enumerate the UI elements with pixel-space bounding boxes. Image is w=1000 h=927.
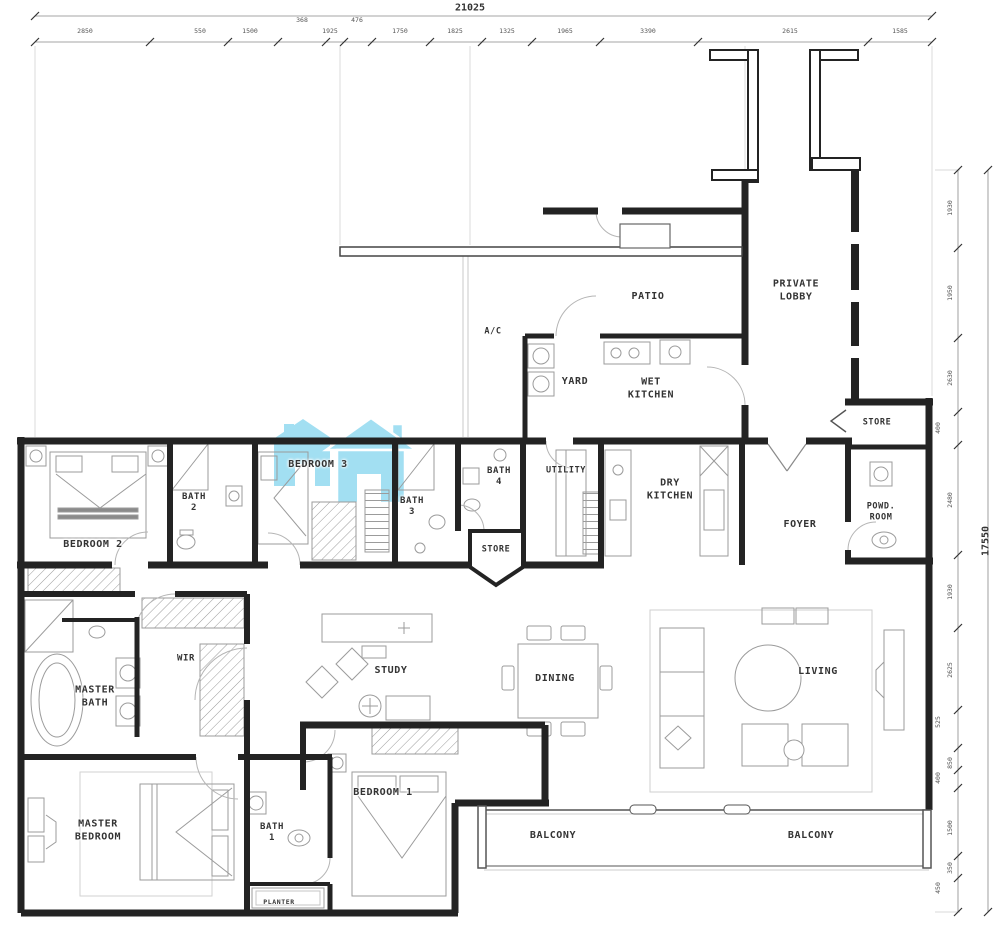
room-label-wet-kitchen: WET KITCHEN [628,377,674,402]
dimension-right-segment: 1500 [946,820,954,836]
room-label-foyer: FOYER [783,519,816,532]
dimension-right-segment: 525 [934,716,942,728]
room-label-master-bedroom: MASTER BEDROOM [75,819,121,844]
dimension-top-segment: 550 [194,27,206,35]
room-label-bedroom-2: BEDROOM 2 [63,539,123,552]
dimension-top-segment: 1825 [447,27,463,35]
dimension-top-segment: 1750 [392,27,408,35]
room-label-store-upper: STORE [863,418,892,429]
dimension-right-segment: 450 [934,882,942,894]
dimension-right-segment: 2625 [946,662,954,678]
room-label-private-lobby: PRIVATE LOBBY [773,279,819,304]
dimension-top-segment: 1325 [499,27,515,35]
dimension-right-segment: 350 [946,862,954,874]
room-label-bath-2: BATH 2 [182,492,206,515]
floor-plan: 21025 17550 PATIOPRIVATE LOBBYA/CYARDWET… [0,0,1000,927]
room-label-bath-4: BATH 4 [487,466,511,489]
room-label-study: STUDY [374,665,407,678]
dimension-total-right: 17550 [981,526,992,556]
room-label-utility: UTILITY [546,466,586,477]
dimension-top-segment: 1585 [892,27,908,35]
dimension-top-segment: 3390 [640,27,656,35]
dimension-right-segment: 2630 [946,370,954,386]
dimension-right-segment: 1950 [946,285,954,301]
room-label-planter: PLANTER [263,898,295,906]
dimension-top-segment: 1965 [557,27,573,35]
dimension-top-segment: 1925 [322,27,338,35]
dimension-right-segment: 1930 [946,200,954,216]
room-label-balcony-right: BALCONY [788,830,834,843]
room-label-bedroom-1: BEDROOM 1 [353,787,413,800]
dimension-top-segment: 476 [351,16,363,24]
dimension-right-segment: 850 [946,757,954,769]
room-label-dry-kitchen: DRY KITCHEN [647,478,693,503]
room-label-wir: WIR [177,653,195,664]
room-label-yard: YARD [562,376,588,389]
room-label-balcony-left: BALCONY [530,830,576,843]
dimension-top-segment: 1500 [242,27,258,35]
dimension-right-segment: 400 [934,772,942,784]
room-label-bath-3: BATH 3 [400,496,424,519]
room-label-patio: PATIO [631,291,664,304]
floor-plan-drawing [0,0,1000,927]
room-label-powd-room: POWD. ROOM [867,501,896,522]
room-label-store-mid: STORE [482,545,511,556]
dimension-top-segment: 368 [296,16,308,24]
dimension-top-segment: 2850 [77,27,93,35]
room-label-ac: A/C [484,327,501,338]
room-label-bath-1: BATH 1 [260,822,284,845]
dimension-top-segment: 2615 [782,27,798,35]
dimension-right-segment: 2480 [946,492,954,508]
room-label-dining: DINING [535,673,575,686]
room-label-bedroom-3: BEDROOM 3 [288,459,348,472]
room-label-master-bath: MASTER BATH [75,685,115,710]
dimension-right-segment: 1930 [946,584,954,600]
dimension-total-top: 21025 [455,3,485,14]
dimension-right-segment: 400 [934,422,942,434]
room-label-living: LIVING [798,666,838,679]
